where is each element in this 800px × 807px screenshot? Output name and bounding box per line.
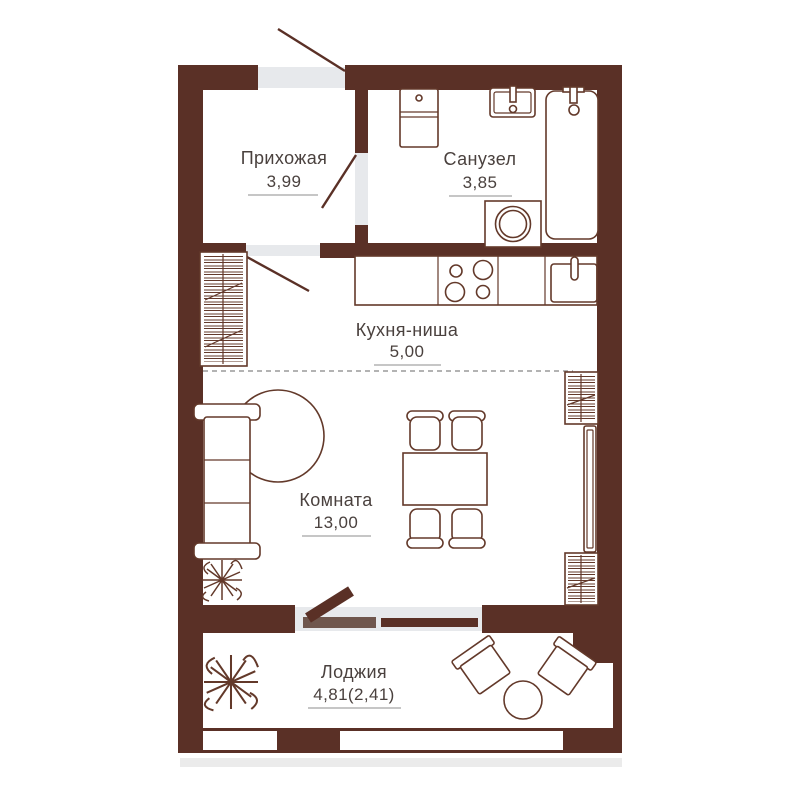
loggia-corner-pier <box>563 730 622 753</box>
loggia-furniture <box>204 635 597 719</box>
entrance-opening <box>258 67 345 88</box>
plant-icon <box>202 560 242 601</box>
room-area: 4,81(2,41) <box>313 685 395 704</box>
room-area: 3,85 <box>463 173 498 192</box>
bathtub-icon <box>546 87 598 239</box>
room-name: Комната <box>299 490 373 510</box>
room-name: Санузел <box>444 149 517 169</box>
wardrobe-icon <box>565 372 598 424</box>
chair-icon <box>407 411 443 450</box>
loggia-inner-rail <box>203 728 613 731</box>
label-living-room: Комната 13,00 <box>299 490 373 536</box>
loggia-outer-rail <box>203 750 622 753</box>
chair-icon <box>449 509 485 548</box>
wardrobe-icon <box>200 252 247 366</box>
armchair-icon <box>451 635 513 697</box>
hall-door-opening <box>246 245 320 256</box>
chair-icon <box>407 509 443 548</box>
label-loggia: Лоджия 4,81(2,41) <box>308 662 401 708</box>
chair-icon <box>449 411 485 450</box>
dining-table-icon <box>403 453 487 505</box>
label-bathroom: Санузел 3,85 <box>444 149 517 196</box>
label-hallway: Прихожая 3,99 <box>241 148 328 195</box>
room-bottom-wall-right <box>482 605 622 633</box>
label-kitchen: Кухня-ниша 5,00 <box>356 320 459 365</box>
sofa-icon <box>194 404 260 559</box>
right-wall <box>597 65 622 663</box>
plant-icon <box>204 655 258 710</box>
room-area: 3,99 <box>267 172 302 191</box>
panel-icon <box>584 426 596 552</box>
room-area: 13,00 <box>314 513 359 532</box>
kitchen-fixtures <box>355 256 597 305</box>
balcony-window-bar <box>381 618 478 627</box>
washing-machine-icon <box>485 201 541 247</box>
plan-shadow <box>180 758 622 767</box>
room-bottom-wall-left <box>178 605 295 633</box>
bath-divider-wall-top <box>355 90 368 153</box>
coffee-table-icon <box>504 681 542 719</box>
floor-plan: Прихожая 3,99 Санузел 3,85 Кухня-ниша 5,… <box>0 0 800 807</box>
loggia-right-wall <box>613 663 622 733</box>
washbasin-icon <box>490 86 535 117</box>
hall-door-leaf <box>247 257 309 291</box>
wardrobe-icon <box>565 553 598 605</box>
loggia-glazing-pier <box>277 730 340 752</box>
room-name: Кухня-ниша <box>356 320 459 340</box>
toilet-icon <box>400 89 438 147</box>
room-name: Прихожая <box>241 148 328 168</box>
hall-bottom-wall-right <box>320 243 355 258</box>
dining-set <box>403 411 487 548</box>
floor-plan-svg: Прихожая 3,99 Санузел 3,85 Кухня-ниша 5,… <box>0 0 800 807</box>
bathroom-door-opening <box>355 153 368 225</box>
entrance-door-leaf <box>278 29 345 71</box>
room-name: Лоджия <box>321 662 387 682</box>
room-area: 5,00 <box>390 342 425 361</box>
